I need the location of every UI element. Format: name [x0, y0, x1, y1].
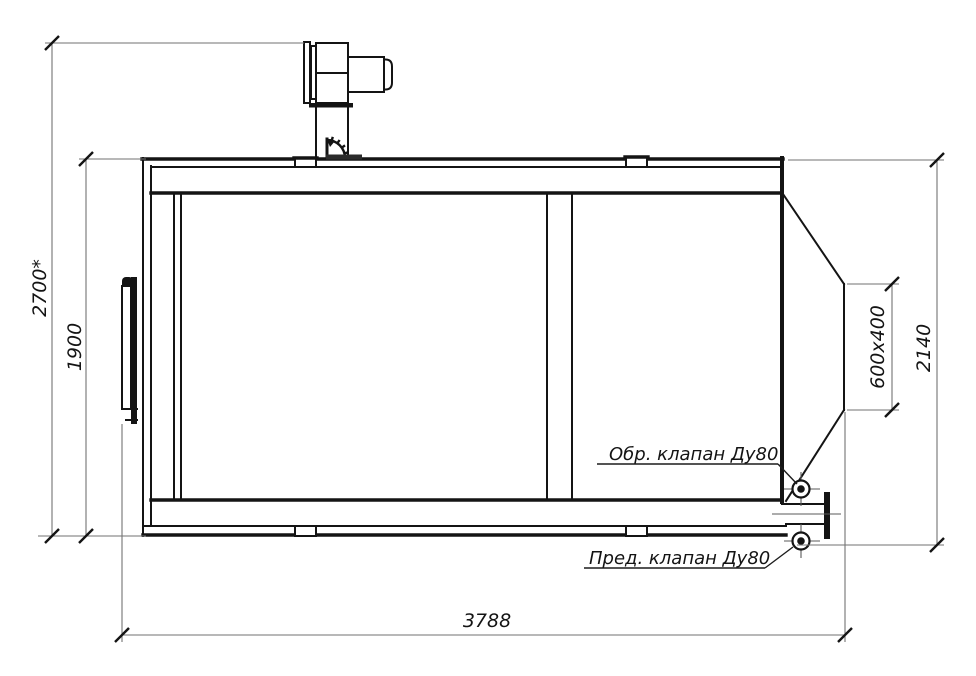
- bottom-tab-right: [626, 526, 647, 536]
- outlet-transition: [783, 194, 844, 501]
- dimension-right-height: 2140: [788, 153, 944, 552]
- check-valve-core: [797, 485, 805, 493]
- safety-valve-icon: [784, 524, 820, 558]
- dim-text-outlet: 600x400: [867, 305, 889, 389]
- inspection-door: [122, 277, 137, 424]
- fan-mount-plate: [304, 42, 310, 103]
- dimension-overall-height: 2700*: [29, 36, 304, 543]
- fan-assembly: [304, 42, 392, 160]
- pipe-flange: [824, 492, 830, 539]
- motor-body: [348, 57, 384, 92]
- dim-text-shell-height: 1900: [64, 323, 86, 371]
- quadrant-tooth-4: [344, 152, 348, 153]
- dimension-outlet: 600x400: [847, 277, 899, 417]
- technical-drawing-canvas: 2700* 1900 2140 600x400 3788 Обр. к: [0, 0, 976, 676]
- tank-body: [142, 157, 786, 536]
- dim-text-overall-length: 3788: [463, 610, 511, 632]
- boiler-side-view-drawing: 2700* 1900 2140 600x400 3788 Обр. к: [0, 0, 976, 676]
- bottom-tab-left: [295, 526, 316, 536]
- motor-end-cap: [384, 60, 392, 90]
- safety-valve-label: Пред. клапан Ду80: [589, 548, 770, 569]
- chamfer-top-diagonal: [783, 194, 844, 284]
- safety-valve-core: [797, 537, 805, 545]
- label-safety-valve: Пред. клапан Ду80: [584, 547, 793, 569]
- damper-quadrant: [326, 137, 362, 160]
- check-valve-label: Обр. клапан Ду80: [609, 444, 778, 465]
- dim-text-right-height: 2140: [913, 324, 935, 372]
- label-check-valve: Обр. клапан Ду80: [597, 444, 797, 484]
- door-panel: [122, 286, 131, 409]
- quadrant-tooth-3: [342, 145, 345, 147]
- quadrant-tooth-1: [332, 137, 333, 141]
- dim-text-overall-height: 2700*: [29, 259, 51, 317]
- quadrant-tooth-2: [337, 140, 339, 143]
- quadrant-base-plate: [326, 155, 362, 160]
